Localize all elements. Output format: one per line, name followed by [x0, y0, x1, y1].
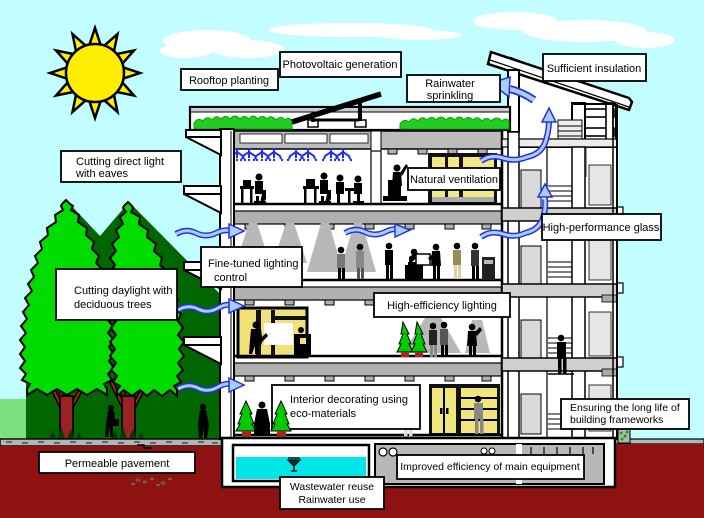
svg-text:Interior decorating using: Interior decorating using [290, 394, 408, 406]
svg-text:Wastewater reuse: Wastewater reuse [290, 481, 374, 493]
svg-text:building frameworks: building frameworks [570, 414, 663, 426]
svg-text:Cutting daylight with: Cutting daylight with [74, 285, 172, 297]
svg-text:Sufficient insulation: Sufficient insulation [547, 63, 642, 75]
svg-text:deciduous trees: deciduous trees [74, 299, 152, 311]
svg-text:Fine-tuned lighting: Fine-tuned lighting [208, 258, 299, 270]
svg-text:Rainwater: Rainwater [425, 78, 475, 90]
svg-text:control: control [214, 272, 247, 284]
svg-text:High-efficiency lighting: High-efficiency lighting [387, 300, 497, 312]
svg-text:Photovoltaic generation: Photovoltaic generation [283, 59, 398, 71]
svg-text:Cutting direct light: Cutting direct light [76, 156, 164, 168]
svg-text:Rooftop planting: Rooftop planting [189, 75, 269, 87]
svg-text:Permeable pavement: Permeable pavement [65, 458, 170, 470]
svg-text:with eaves: with eaves [75, 168, 128, 180]
svg-text:Improved efficiency of main eq: Improved efficiency of main equipment [400, 461, 580, 473]
svg-text:High-performance glass: High-performance glass [543, 222, 660, 234]
svg-text:Rainwater use: Rainwater use [298, 494, 365, 506]
svg-text:Natural ventilation: Natural ventilation [410, 174, 498, 186]
svg-text:sprinkling: sprinkling [427, 90, 473, 102]
svg-text:eco-materials: eco-materials [290, 408, 357, 420]
svg-text:Ensuring the long life of: Ensuring the long life of [570, 402, 680, 414]
